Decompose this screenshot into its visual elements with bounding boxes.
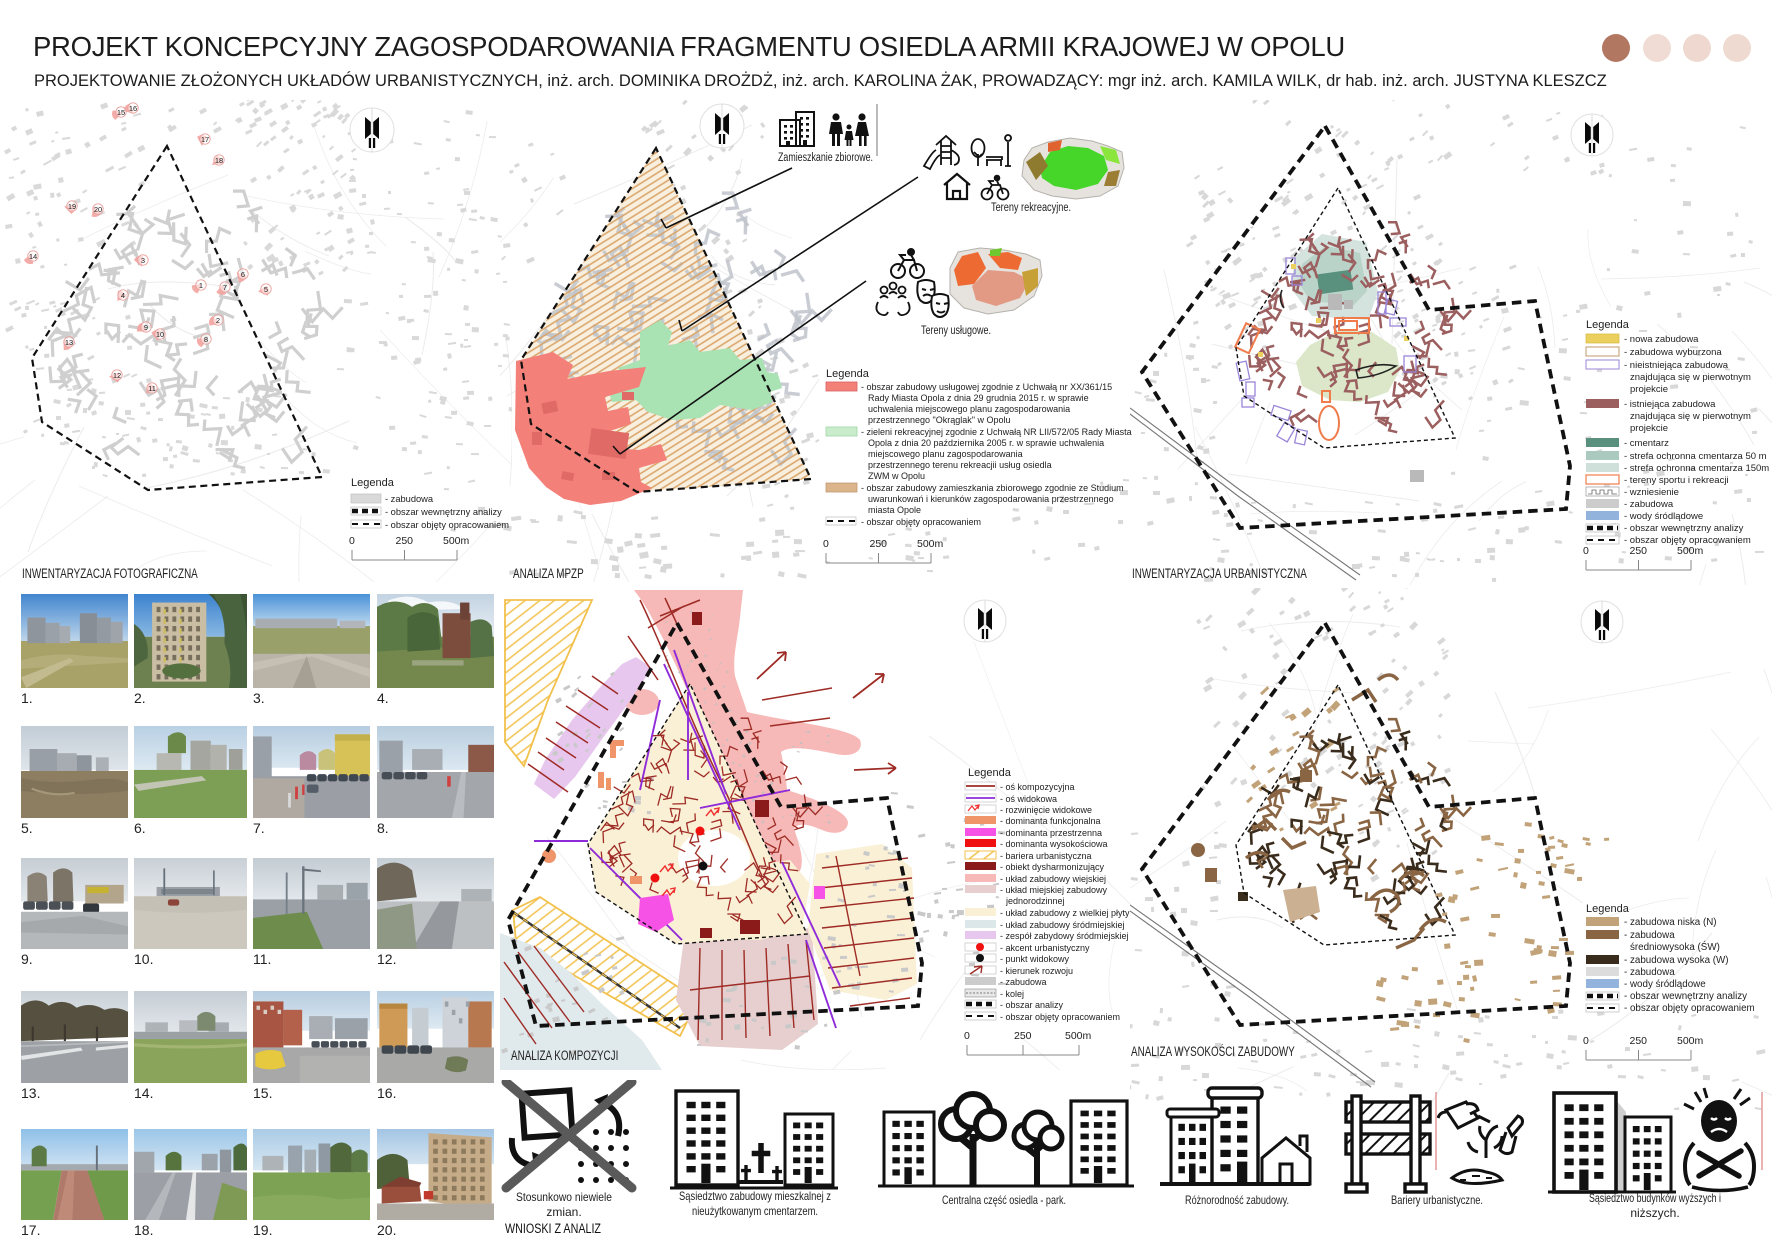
svg-text:250: 250 xyxy=(1014,1030,1032,1042)
svg-text:500m: 500m xyxy=(1677,545,1704,557)
svg-text:- obszar zabudowy usługowej zg: - obszar zabudowy usługowej zgodnie z Uc… xyxy=(861,382,1112,392)
svg-text:projekcie: projekcie xyxy=(1630,423,1668,434)
svg-text:Tereny rekreacyjne.: Tereny rekreacyjne. xyxy=(991,202,1071,214)
svg-text:19: 19 xyxy=(68,202,76,211)
svg-text:0: 0 xyxy=(823,538,829,550)
svg-text:- obszar objęty opracowaniem: - obszar objęty opracowaniem xyxy=(1624,1003,1755,1014)
svg-text:- zabudowa: - zabudowa xyxy=(1624,930,1675,941)
svg-text:- zabudowa wyburzona: - zabudowa wyburzona xyxy=(1624,347,1722,358)
svg-text:- nowa zabudowa: - nowa zabudowa xyxy=(1624,334,1699,345)
svg-text:- kierunek rozwoju: - kierunek rozwoju xyxy=(1000,966,1073,976)
svg-text:0: 0 xyxy=(964,1030,970,1042)
svg-text:9: 9 xyxy=(144,323,148,332)
svg-text:15: 15 xyxy=(117,108,125,117)
svg-text:- zabudowa niska (N): - zabudowa niska (N) xyxy=(1624,917,1717,928)
svg-text:zmian.: zmian. xyxy=(546,1205,581,1219)
svg-text:14: 14 xyxy=(29,252,37,261)
svg-text:- zabudowa: - zabudowa xyxy=(1624,967,1675,978)
svg-text:uwarunkowań i kierunków zagosp: uwarunkowań i kierunków zagospodarowania… xyxy=(868,494,1114,504)
svg-text:Tereny usługowe.: Tereny usługowe. xyxy=(921,325,991,337)
svg-text:7: 7 xyxy=(223,283,227,292)
svg-text:- obszar wewnętrzny analizy: - obszar wewnętrzny analizy xyxy=(1624,523,1744,534)
svg-text:- obszar objęty opracowaniem: - obszar objęty opracowaniem xyxy=(861,517,981,527)
svg-text:250: 250 xyxy=(396,535,414,547)
svg-text:miasta Opole: miasta Opole xyxy=(868,505,921,515)
svg-text:- obszar objęty opracowaniem: - obszar objęty opracowaniem xyxy=(385,520,509,530)
svg-text:250: 250 xyxy=(870,538,888,550)
svg-text:WNIOSKI Z ANALIZ: WNIOSKI Z ANALIZ xyxy=(505,1221,601,1236)
svg-text:- oś kompozycyjna: - oś kompozycyjna xyxy=(1000,782,1075,792)
svg-text:- zabudowa wysoka (W): - zabudowa wysoka (W) xyxy=(1624,955,1729,966)
svg-text:500m: 500m xyxy=(1065,1030,1092,1042)
svg-text:3: 3 xyxy=(141,256,145,265)
svg-text:- obszar objęty opracowaniem: - obszar objęty opracowaniem xyxy=(1000,1012,1120,1022)
svg-text:- akcent urbanistyczny: - akcent urbanistyczny xyxy=(1000,943,1090,953)
svg-text:- tereny sportu i rekreacji: - tereny sportu i rekreacji xyxy=(1624,475,1729,486)
svg-text:8: 8 xyxy=(204,335,208,344)
svg-text:- układ miejskiej zabudowy: - układ miejskiej zabudowy xyxy=(1000,885,1108,895)
svg-text:- dominanta wysokościowa: - dominanta wysokościowa xyxy=(1000,839,1108,849)
svg-text:ZWM w Opolu: ZWM w Opolu xyxy=(868,471,925,481)
svg-text:1: 1 xyxy=(199,281,203,290)
svg-text:12: 12 xyxy=(113,371,121,380)
svg-text:- wzniesienie: - wzniesienie xyxy=(1624,487,1679,498)
svg-text:przestrzennego terenu rekreacj: przestrzennego terenu rekreacjii usług o… xyxy=(868,460,1052,470)
svg-text:- układ zabudowy wiejskiej: - układ zabudowy wiejskiej xyxy=(1000,874,1106,884)
svg-text:- obszar analizy: - obszar analizy xyxy=(1000,1000,1064,1010)
svg-text:- istniejąca zabudowa: - istniejąca zabudowa xyxy=(1624,399,1716,410)
svg-text:18: 18 xyxy=(215,156,223,165)
svg-text:0: 0 xyxy=(349,535,355,547)
svg-text:- wody śródlądowe: - wody śródlądowe xyxy=(1624,979,1706,990)
svg-text:Sąsiedztwo zabudowy mieszkalne: Sąsiedztwo zabudowy mieszkalnej z xyxy=(679,1189,831,1203)
svg-text:Legenda: Legenda xyxy=(1586,903,1630,915)
svg-text:- obszar zabudowy zamieszkania: - obszar zabudowy zamieszkania zbioroweg… xyxy=(861,483,1124,493)
svg-text:0: 0 xyxy=(1583,1035,1589,1047)
svg-text:- zespół zabydowy śródmiejskie: - zespół zabydowy śródmiejskiej xyxy=(1000,931,1129,941)
svg-text:znajdująca się w pierwotnym: znajdująca się w pierwotnym xyxy=(1630,372,1751,383)
svg-text:- oś widokowa: - oś widokowa xyxy=(1000,794,1057,804)
svg-text:11: 11 xyxy=(148,384,156,393)
svg-text:- obszar wewnętrzny analizy: - obszar wewnętrzny analizy xyxy=(1624,991,1747,1002)
svg-text:Stosunkowo niewiele: Stosunkowo niewiele xyxy=(516,1190,612,1204)
svg-text:0: 0 xyxy=(1583,545,1589,557)
svg-text:Zamieszkanie zbiorowe.: Zamieszkanie zbiorowe. xyxy=(778,152,873,164)
svg-text:projekcie: projekcie xyxy=(1630,384,1668,395)
svg-text:16: 16 xyxy=(129,104,137,113)
svg-text:- zieleni rekreacyjnej zgodnie: - zieleni rekreacyjnej zgodnie z Uchwałą… xyxy=(861,427,1132,437)
svg-text:- wody śródlądowe: - wody śródlądowe xyxy=(1624,511,1703,522)
svg-text:- dominanta przestrzenna: - dominanta przestrzenna xyxy=(1000,828,1102,838)
svg-text:- obiekt dysharmonizujący: - obiekt dysharmonizujący xyxy=(1000,862,1105,872)
svg-text:500m: 500m xyxy=(917,538,944,550)
svg-text:- zabudowa: - zabudowa xyxy=(1000,977,1047,987)
svg-text:- zabudowa: - zabudowa xyxy=(1624,499,1674,510)
svg-text:Legenda: Legenda xyxy=(1586,319,1630,331)
svg-text:10: 10 xyxy=(156,330,164,339)
svg-text:Sąsiedztwo budynków wyższych i: Sąsiedztwo budynków wyższych i xyxy=(1589,1191,1721,1205)
svg-text:Centralna część osiedla - park: Centralna część osiedla - park. xyxy=(942,1193,1066,1207)
svg-text:Rady Miasta Opola z dnia 29 gr: Rady Miasta Opola z dnia 29 grudnia 2015… xyxy=(868,393,1089,403)
svg-text:Bariery urbanistyczne.: Bariery urbanistyczne. xyxy=(1391,1193,1483,1207)
svg-text:znajdująca się w pierwotnym: znajdująca się w pierwotnym xyxy=(1630,411,1751,422)
svg-text:miejscowego planu zagospodarow: miejscowego planu zagospodarowania xyxy=(868,449,1023,459)
svg-text:- zabudowa: - zabudowa xyxy=(385,494,434,504)
svg-text:4: 4 xyxy=(121,291,125,300)
svg-text:500m: 500m xyxy=(443,535,470,547)
svg-text:- rozwinięcie widokowe: - rozwinięcie widokowe xyxy=(1000,805,1092,815)
svg-text:- kolej: - kolej xyxy=(1000,989,1024,999)
svg-text:- układ zabudowy z wielkiej pł: - układ zabudowy z wielkiej płyty xyxy=(1000,908,1130,918)
svg-text:- cmentarz: - cmentarz xyxy=(1624,438,1669,449)
svg-text:5: 5 xyxy=(264,285,268,294)
svg-text:- dominanta funkcjonalna: - dominanta funkcjonalna xyxy=(1000,816,1101,826)
svg-text:250: 250 xyxy=(1630,545,1648,557)
svg-text:uchwalenia miejscowego planu z: uchwalenia miejscowego planu zagospodaro… xyxy=(868,404,1070,414)
svg-text:- bariera urbanistyczna: - bariera urbanistyczna xyxy=(1000,851,1092,861)
svg-text:średniowysoka (ŚW): średniowysoka (ŚW) xyxy=(1630,941,1720,953)
svg-text:niższych.: niższych. xyxy=(1630,1206,1679,1220)
svg-text:6: 6 xyxy=(241,270,245,279)
svg-text:- strefa ochronna cmentarza 15: - strefa ochronna cmentarza 150m xyxy=(1624,463,1769,474)
svg-text:- układ zabudowy śródmiejskie: - układ zabudowy śródmiejskiej xyxy=(1000,920,1125,930)
svg-text:- nieistniejąca zabudowa: - nieistniejąca zabudowa xyxy=(1624,360,1729,371)
svg-text:- punkt widokowy: - punkt widokowy xyxy=(1000,954,1070,964)
svg-text:Legenda: Legenda xyxy=(826,368,870,380)
svg-text:13: 13 xyxy=(65,338,73,347)
svg-text:nieużytkowanym cmentarzem.: nieużytkowanym cmentarzem. xyxy=(692,1204,818,1218)
svg-text:- obszar wewnętrzny analizy: - obszar wewnętrzny analizy xyxy=(385,507,502,517)
svg-text:500m: 500m xyxy=(1677,1035,1704,1047)
svg-text:Opola z dnia 20 października 2: Opola z dnia 20 października 2005 r. w s… xyxy=(868,438,1104,448)
svg-text:Legenda: Legenda xyxy=(351,477,395,489)
svg-text:Różnorodność zabudowy.: Różnorodność zabudowy. xyxy=(1185,1193,1289,1207)
svg-text:przestrzennego "Okrąglak" w Op: przestrzennego "Okrąglak" w Opolu xyxy=(868,415,1010,425)
svg-text:- strefa ochronna cmentarza 50: - strefa ochronna cmentarza 50 m xyxy=(1624,451,1767,462)
svg-text:250: 250 xyxy=(1630,1035,1648,1047)
svg-text:20: 20 xyxy=(94,205,102,214)
svg-text:2: 2 xyxy=(216,316,220,325)
svg-text:17: 17 xyxy=(201,135,209,144)
svg-text:Legenda: Legenda xyxy=(968,767,1012,779)
svg-text:jednorodzinnej: jednorodzinnej xyxy=(1005,896,1065,906)
